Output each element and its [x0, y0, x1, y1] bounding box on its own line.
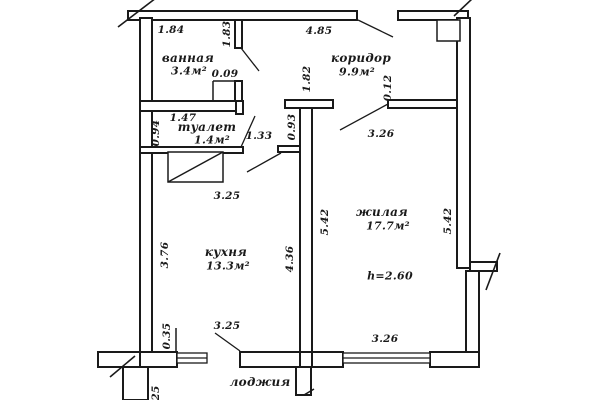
dim-bath-left: 1.83	[222, 21, 233, 48]
wall-loggia-divider	[296, 367, 311, 395]
wall-bathroom-right-upper	[235, 20, 242, 48]
wall-living-bottom-right	[430, 352, 479, 367]
entry-niche-box	[437, 20, 460, 41]
wall-top-left	[128, 11, 357, 20]
wall-bathroom-right-lower	[235, 81, 242, 101]
dim-corridor-left: 1.82	[302, 66, 313, 93]
room-label-living: жилая	[356, 206, 408, 218]
wall-corridor-bottom-right	[388, 100, 457, 108]
dim-kitchen-left: 3.76	[160, 242, 171, 269]
dim-niche: 1.33	[246, 131, 273, 142]
wall-left-outrigger	[98, 352, 140, 367]
dim-corridor-top: 4.85	[306, 26, 333, 37]
wall-corridor-bottom-left	[285, 100, 333, 108]
room-ceiling-height: h=2.60	[367, 271, 413, 282]
dim-kitchen-sill: 0.35	[162, 323, 173, 350]
dim-living-stub: 0.12	[383, 75, 394, 102]
dim-living-right: 5.42	[443, 208, 454, 235]
floor-plan: 1.84 4.85 0.09 1.47 1.33 3.26 3.25 3.25 …	[0, 0, 600, 400]
dim-loggia-partial: 25	[151, 385, 162, 400]
walls	[98, 11, 497, 400]
wall-kitchen-door-stub	[278, 146, 302, 152]
entrance-door-swing	[358, 20, 393, 37]
room-area-corridor: 9.9м²	[339, 67, 375, 78]
dim-living-left: 5.42	[320, 209, 331, 236]
floor-plan-drawing	[0, 0, 600, 400]
dim-kitchen-top: 3.25	[214, 191, 241, 202]
dim-living-bottom: 3.26	[372, 334, 399, 345]
room-area-bathroom: 3.4м²	[171, 66, 207, 77]
wall-left	[140, 18, 152, 352]
room-label-corridor: коридор	[331, 52, 391, 64]
wall-right-upper	[457, 18, 470, 268]
dim-bath-offset: 0.09	[212, 69, 239, 80]
room-label-loggia: лоджия	[230, 376, 291, 388]
loggia-door-swing	[215, 333, 240, 351]
wall-kitchen-bottom-right	[240, 352, 300, 367]
room-label-kitchen: кухня	[205, 246, 247, 258]
wall-kitchen-living-divider	[300, 108, 312, 352]
bathroom-door-swing	[241, 48, 259, 71]
room-area-kitchen: 13.3м²	[206, 261, 250, 272]
dim-kitchen-bottom: 3.25	[214, 321, 241, 332]
wall-toilet-right-stub	[236, 101, 243, 114]
dim-kitchen-right: 4.36	[285, 246, 296, 273]
dim-bath-top: 1.84	[158, 25, 185, 36]
room-label-toilet: туалет	[178, 121, 237, 133]
room-area-living: 17.7м²	[366, 221, 410, 232]
dim-living-top: 3.26	[368, 129, 395, 140]
dim-passage: 0.93	[287, 114, 298, 141]
dim-toilet-left: 0.94	[151, 120, 162, 147]
wall-loggia-left	[123, 367, 148, 400]
living-door-swing	[340, 104, 388, 130]
wall-bathroom-toilet	[140, 101, 243, 111]
kitchen-door-swing	[247, 153, 281, 172]
room-label-bathroom: ванная	[162, 52, 214, 64]
wall-living-bottom-left	[312, 352, 343, 367]
windows	[177, 353, 430, 363]
room-area-toilet: 1.4м²	[194, 135, 230, 146]
